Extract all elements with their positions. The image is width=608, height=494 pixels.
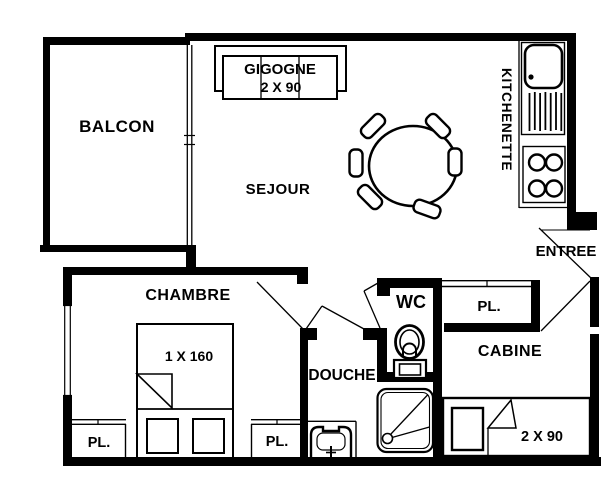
- wall-cabine-left: [433, 278, 442, 458]
- cabine-label: CABINE: [478, 343, 542, 360]
- sejour-label: SEJOUR: [246, 181, 311, 198]
- placard-hall-front: [442, 280, 533, 287]
- wall-wc-top-block: [377, 278, 390, 296]
- wall-balcon-top: [43, 37, 190, 45]
- pillow: [147, 419, 178, 453]
- kitchenette-unit: [519, 41, 567, 208]
- pillow: [193, 419, 224, 453]
- placard-chambre-left-label: PL.: [88, 435, 111, 451]
- sink-drainer-icon: [530, 92, 562, 131]
- wc-door-swing: [364, 283, 378, 291]
- balcony-glass-door: [184, 45, 195, 245]
- wall-placard-hall-bottom: [444, 323, 540, 332]
- dining-set: [350, 112, 462, 220]
- wall-balcon-left: [43, 37, 50, 252]
- wall-balcon-bottom: [40, 245, 196, 252]
- wc-label: WC: [396, 292, 426, 312]
- floor-plan: BALCON SEJOUR KITCHENETTE ENTREE CHAMBRE…: [0, 0, 608, 494]
- wall-right-upper: [567, 33, 576, 223]
- wall-chambre-top-stub: [297, 267, 308, 284]
- washbasin-icon: [308, 421, 356, 461]
- wall-right-mid: [590, 277, 599, 327]
- douche-door-swing: [322, 306, 364, 329]
- chair-icon: [412, 198, 442, 219]
- wall-chambre-top: [63, 267, 308, 275]
- wall-right-lower: [590, 334, 599, 458]
- toilet-icon: [394, 326, 426, 379]
- wall-douche-left: [300, 328, 308, 458]
- shower-tray-icon: [378, 389, 434, 452]
- kitchen-sink-icon: [525, 45, 562, 88]
- wc-door-swing: [364, 291, 380, 328]
- chambre-door-swing: [257, 282, 303, 329]
- wall-entry-step: [567, 212, 597, 230]
- wall-sejour-top: [185, 33, 575, 41]
- sofa-bed-size-label: 2 X 90: [261, 79, 302, 95]
- cabine-door-swing: [541, 281, 590, 331]
- pillow: [452, 408, 483, 450]
- cabine-bed-size-label: 2 X 90: [521, 429, 563, 445]
- chair-icon: [449, 149, 462, 176]
- faucet-icon: [528, 74, 533, 79]
- sofa-bed-name-label: GIGOGNE: [244, 61, 316, 78]
- placard-chambre-right-label: PL.: [266, 434, 289, 450]
- douche-label: DOUCHE: [308, 367, 375, 384]
- kitchenette-label: KITCHENETTE: [499, 68, 514, 171]
- placard-hall-label: PL.: [477, 298, 500, 315]
- entree-label: ENTREE: [536, 243, 597, 260]
- douche-door-swing: [306, 306, 322, 329]
- chambre-window: [63, 305, 72, 396]
- wall-douche-doorpost-left: [300, 328, 317, 340]
- chambre-bed-size-label: 1 X 160: [165, 348, 213, 364]
- balcon-label: BALCON: [79, 117, 155, 136]
- chambre-label: CHAMBRE: [145, 287, 230, 304]
- wall-placard-hall-right: [531, 280, 540, 332]
- chair-icon: [350, 150, 363, 177]
- single-bed: [443, 398, 590, 456]
- double-bed: [137, 324, 233, 458]
- wall-chambre-left-lower: [63, 396, 72, 466]
